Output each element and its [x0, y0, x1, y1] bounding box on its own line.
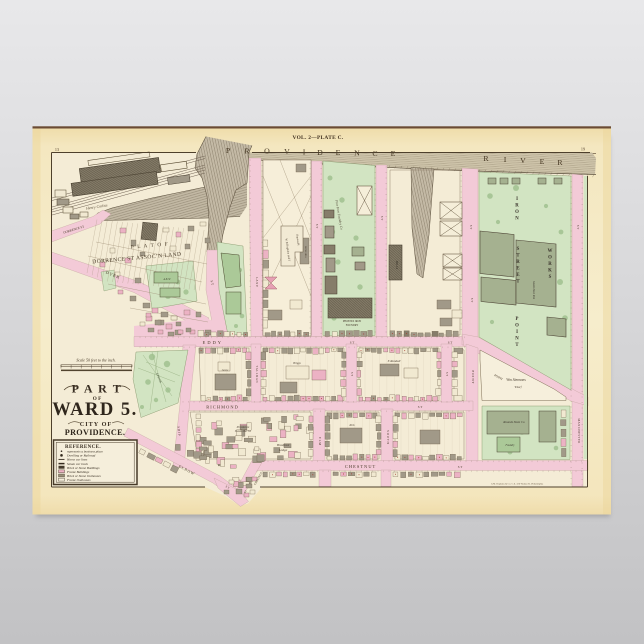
- svg-text:Wm Simmons: Wm Simmons: [506, 378, 526, 382]
- svg-text:I: I: [516, 197, 518, 202]
- svg-text:S T: S T: [315, 224, 319, 229]
- svg-text:O: O: [548, 256, 552, 261]
- svg-text:Lodge: Lodge: [278, 448, 288, 452]
- svg-text:O: O: [515, 210, 519, 215]
- svg-text:FOUNDRY: FOUNDRY: [346, 324, 359, 327]
- svg-text:PROVIDENCE.: PROVIDENCE.: [65, 428, 125, 437]
- svg-text:R: R: [244, 146, 250, 155]
- svg-text:Scale 50 feet to the inch.: Scale 50 feet to the inch.: [76, 358, 115, 363]
- svg-text:S O U T H: S O U T H: [386, 430, 390, 444]
- svg-text:G.M. Hopkins & Co. C.E. 320 Wa: G.M. Hopkins & Co. C.E. 320 Walnut St. P…: [491, 482, 544, 485]
- svg-text:N: N: [515, 217, 519, 222]
- svg-text:MANCHESTER: MANCHESTER: [577, 418, 581, 443]
- svg-text:CITY OF: CITY OF: [80, 421, 112, 428]
- svg-text:E: E: [540, 157, 545, 166]
- svg-text:N: N: [515, 337, 519, 342]
- svg-text:Steam Mill Co: Steam Mill Co: [235, 430, 252, 433]
- svg-text:O: O: [515, 324, 519, 329]
- svg-text:VOL. 2—PLATE C.: VOL. 2—PLATE C.: [292, 135, 343, 141]
- svg-text:13: 13: [55, 147, 59, 152]
- svg-text:E D D Y: E D D Y: [203, 340, 222, 345]
- svg-text:Grace: Grace: [222, 369, 229, 372]
- svg-text:C: C: [372, 149, 377, 158]
- svg-text:19: 19: [581, 147, 585, 152]
- svg-text:I: I: [303, 147, 306, 156]
- svg-text:WARD 5.: WARD 5.: [52, 400, 138, 420]
- svg-text:E L M: E L M: [318, 437, 322, 445]
- svg-text:MILLS: MILLS: [395, 261, 398, 270]
- svg-text:Wharf: Wharf: [515, 386, 523, 389]
- svg-text:S T: S T: [350, 341, 355, 345]
- svg-text:Providence: Providence: [236, 426, 250, 429]
- svg-text:PHOENIX IRON: PHOENIX IRON: [343, 320, 361, 323]
- svg-text:C H E S T N U T: C H E S T N U T: [345, 464, 376, 469]
- svg-text:K: K: [548, 269, 552, 274]
- svg-text:P: P: [226, 146, 231, 155]
- svg-text:V: V: [520, 156, 526, 165]
- svg-text:S: S: [549, 275, 552, 280]
- svg-text:Foundry: Foundry: [505, 444, 516, 447]
- svg-text:S T: S T: [458, 465, 463, 469]
- svg-text:S T: S T: [576, 225, 580, 230]
- svg-text:A & W: A & W: [162, 278, 171, 281]
- svg-text:S T: S T: [445, 372, 449, 376]
- svg-text:S T: S T: [469, 225, 473, 230]
- svg-text:W: W: [548, 249, 553, 254]
- svg-text:R: R: [483, 154, 489, 163]
- svg-text:Bradford: Bradford: [277, 443, 290, 447]
- svg-text:R: R: [557, 158, 563, 167]
- svg-text:S T: S T: [350, 372, 354, 376]
- svg-text:Rounds Slate Co: Rounds Slate Co: [502, 420, 525, 424]
- svg-text:E: E: [516, 273, 519, 278]
- svg-text:R: R: [548, 262, 552, 267]
- svg-text:S T: S T: [380, 216, 384, 221]
- svg-text:S: S: [517, 247, 520, 252]
- svg-text:V: V: [284, 147, 290, 156]
- svg-text:P A R T: P A R T: [72, 382, 123, 396]
- svg-text:R: R: [516, 260, 520, 265]
- svg-text:Kirk: Kirk: [349, 424, 356, 427]
- svg-text:S T: S T: [418, 405, 423, 409]
- svg-text:S T: S T: [470, 298, 474, 303]
- svg-text:O: O: [264, 147, 270, 156]
- svg-text:I: I: [516, 330, 518, 335]
- svg-text:E Randall: E Randall: [387, 359, 401, 363]
- svg-text:S T: S T: [448, 341, 453, 345]
- svg-text:L A N E: L A N E: [255, 277, 259, 287]
- svg-text:Gaston Steel Iron: Gaston Steel Iron: [532, 281, 535, 300]
- svg-text:R I C H M O N D: R I C H M O N D: [206, 404, 238, 409]
- svg-text:R: R: [515, 204, 519, 209]
- svg-text:I: I: [504, 155, 507, 164]
- svg-text:E: E: [391, 149, 396, 158]
- svg-text:P: P: [516, 317, 519, 322]
- svg-text:E: E: [516, 267, 519, 272]
- svg-text:T A L L M A N: T A L L M A N: [255, 366, 258, 383]
- svg-text:Briggs: Briggs: [293, 362, 300, 365]
- svg-text:Frame Outhouses: Frame Outhouses: [66, 478, 91, 482]
- svg-text:P O I N T: P O I N T: [471, 370, 475, 384]
- svg-text:BONE MILL: BONE MILL: [304, 246, 306, 259]
